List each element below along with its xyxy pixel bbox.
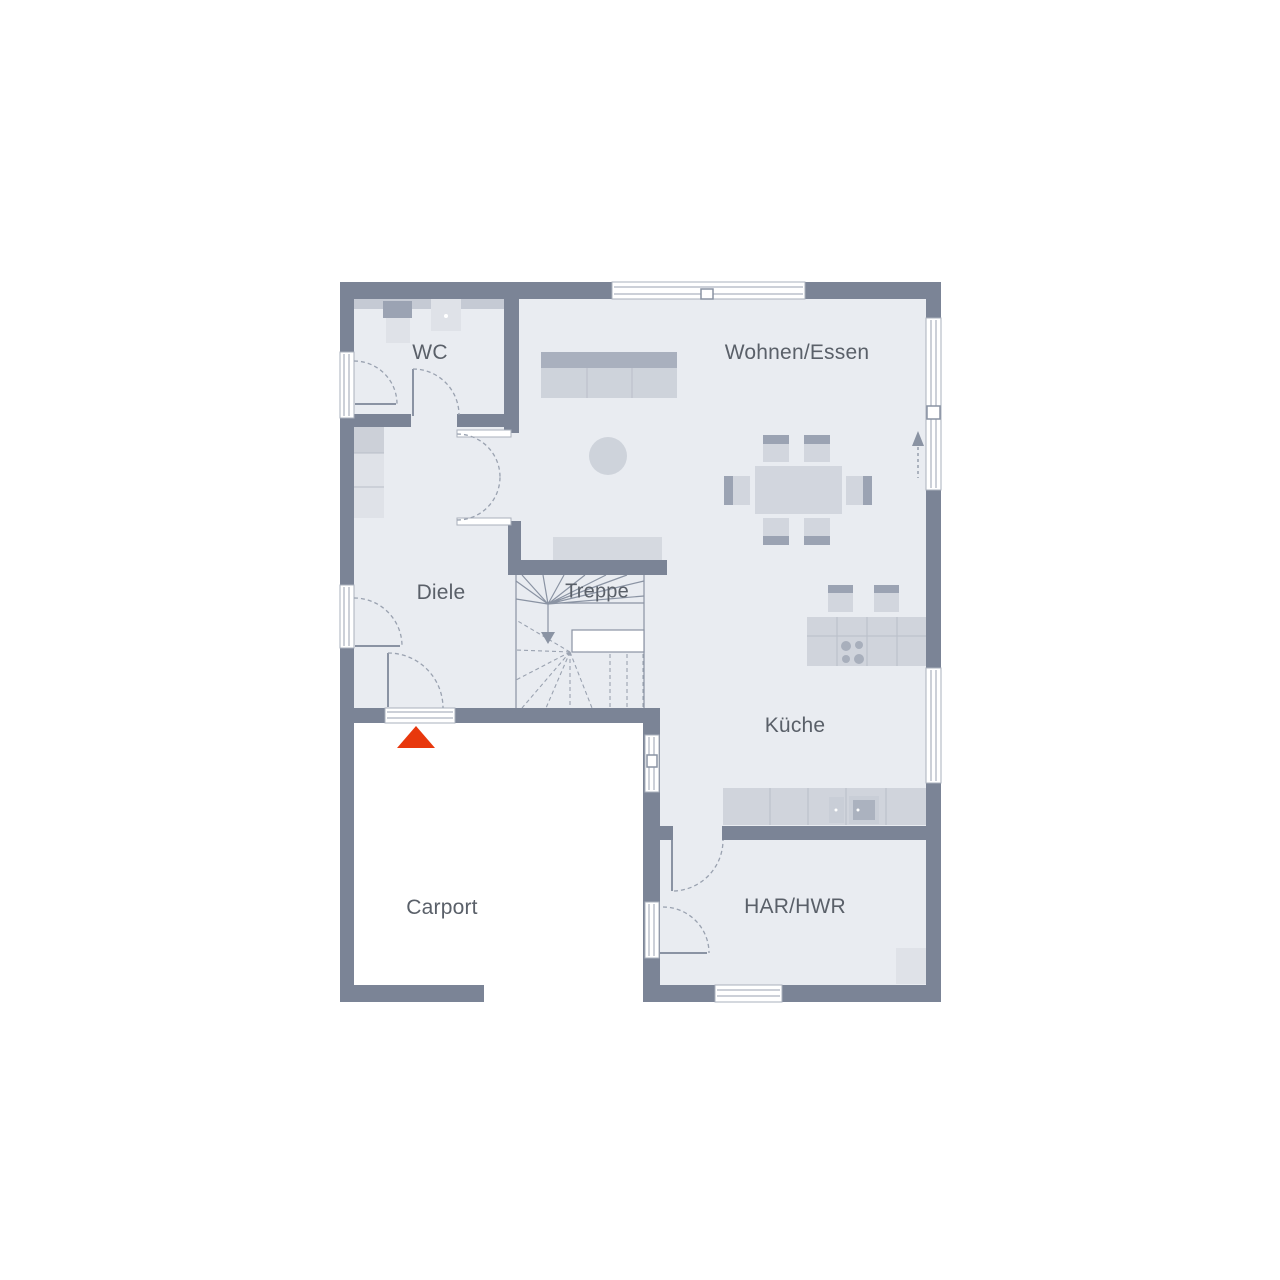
carport-kueche-window bbox=[645, 735, 659, 792]
stair-landing bbox=[572, 630, 644, 652]
top-window bbox=[612, 282, 805, 299]
double-door-sill-top bbox=[457, 430, 511, 437]
har-bottom-window bbox=[715, 985, 782, 1002]
kitchen-island bbox=[807, 617, 927, 666]
toilet-icon bbox=[383, 301, 412, 318]
wall-bottom-right bbox=[643, 985, 941, 1002]
room-label-har-hwr: HAR/HWR bbox=[744, 895, 846, 919]
wall-wc-bottom-left bbox=[354, 414, 411, 427]
room-label-wohnen-essen: Wohnen/Essen bbox=[725, 341, 869, 365]
har-equipment bbox=[896, 948, 926, 984]
room-label-carport: Carport bbox=[406, 896, 477, 920]
coffee-table-icon bbox=[589, 437, 627, 475]
entrance-door-sill bbox=[385, 708, 455, 723]
wall-har-top bbox=[722, 826, 926, 840]
carport-har-door-sill bbox=[645, 902, 659, 958]
wc-window bbox=[340, 352, 354, 418]
sofa bbox=[541, 352, 677, 398]
floor-plan-drawing bbox=[0, 0, 1280, 1280]
carport-floor-open-edge bbox=[482, 985, 643, 1002]
carport-floor bbox=[354, 723, 643, 985]
wall-har-top-stub bbox=[660, 826, 673, 840]
diele-wardrobe bbox=[354, 427, 384, 518]
wall-bottom-left bbox=[340, 985, 484, 1002]
wohnen-window bbox=[926, 318, 941, 490]
room-label-treppe: Treppe bbox=[565, 581, 629, 604]
wall-wc-bottom-right bbox=[457, 414, 512, 427]
sideboard bbox=[553, 537, 662, 560]
kueche-window bbox=[926, 668, 941, 783]
kitchen-counter bbox=[723, 788, 926, 825]
diele-window bbox=[340, 585, 354, 648]
wall-wc-right bbox=[504, 296, 519, 433]
room-label-diele: Diele bbox=[417, 581, 466, 605]
room-label-kueche: Küche bbox=[765, 714, 826, 738]
room-label-wc: WC bbox=[412, 341, 447, 365]
dining-table-icon bbox=[755, 466, 842, 514]
wall-stairs-top bbox=[508, 560, 667, 575]
floor-plan-page: WC Wohnen/Essen Diele Treppe Küche Carpo… bbox=[0, 0, 1280, 1280]
